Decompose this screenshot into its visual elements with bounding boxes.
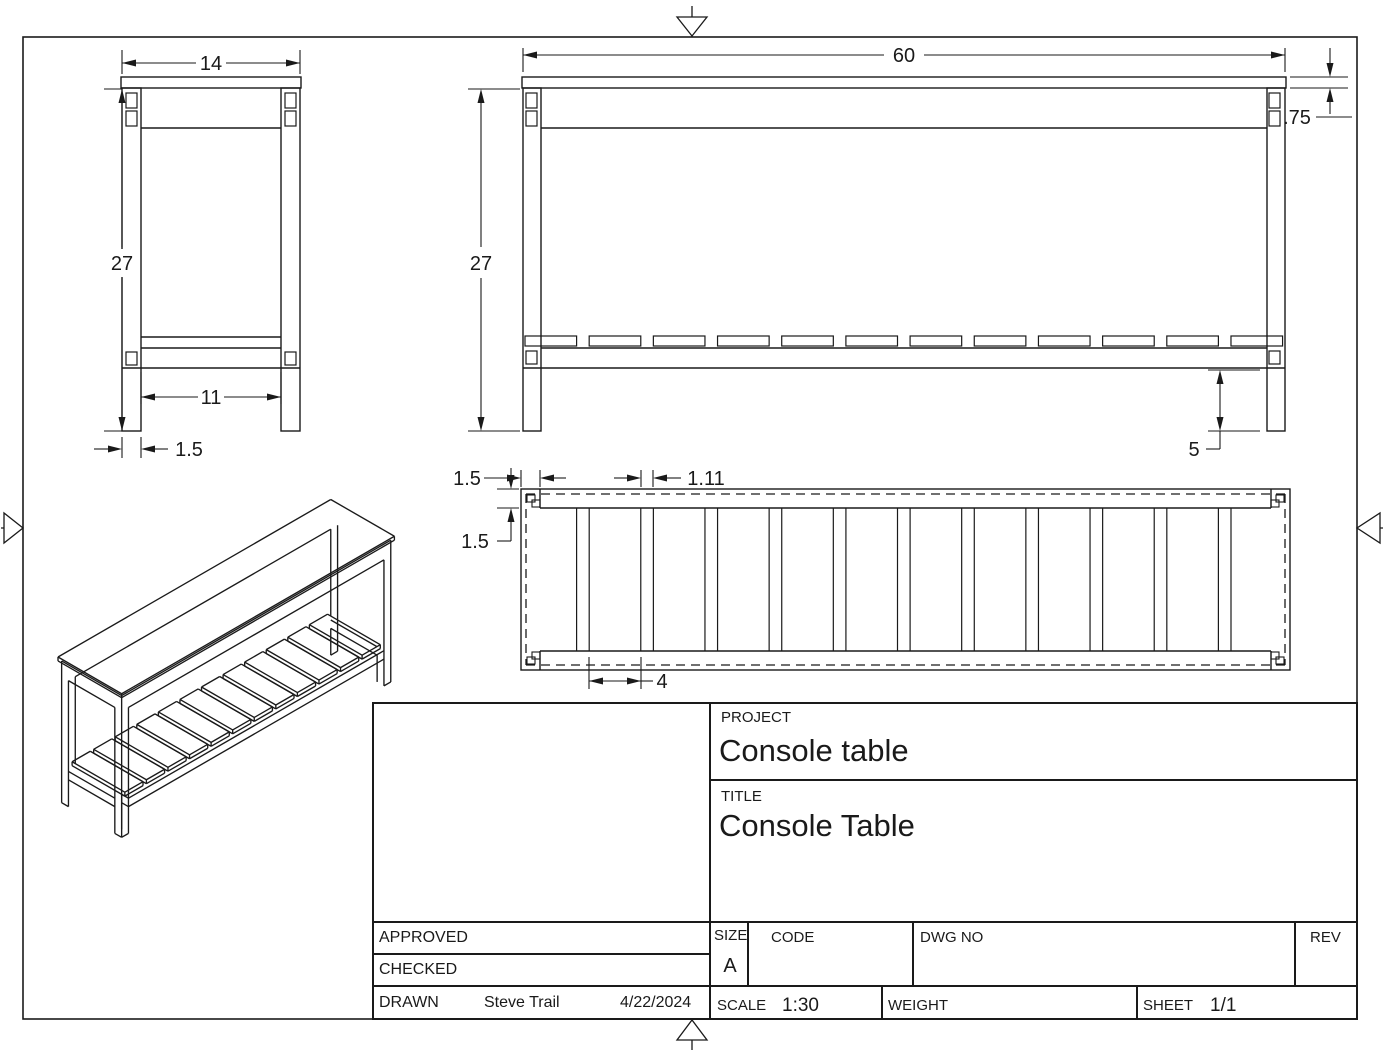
drawing-rect (1269, 351, 1280, 364)
drawing-rect (1276, 495, 1284, 502)
front-shelf-height-dim-label: 5 (1188, 439, 1199, 461)
approved-label: APPROVED (379, 929, 468, 947)
drawing-rect (285, 111, 296, 126)
drawing-line (223, 664, 241, 675)
drawing-rect (653, 336, 705, 346)
front-width-dim-label: 60 (893, 45, 915, 67)
dimension-arrowhead (478, 417, 485, 431)
dimension-arrowhead (122, 60, 136, 67)
front-view: 6027.755 (464, 45, 1352, 461)
drawing-sheet: 1427111.56027.7551.51.111.54 PROJECT Con… (0, 0, 1384, 1053)
front-height-dim-label: 27 (470, 253, 492, 275)
dimension-arrowhead (589, 678, 603, 685)
drawing-rect (526, 351, 537, 364)
drawing-line (72, 766, 125, 796)
dimension-arrowhead (286, 60, 300, 67)
plan-slat-width-dim-label: 4 (656, 671, 667, 693)
drawing-rect (1271, 500, 1279, 507)
drawing-line (158, 701, 176, 712)
drawing-line (309, 614, 327, 625)
drawing-rect (285, 93, 296, 108)
dimension-arrowhead (119, 89, 126, 103)
drawing-line (202, 677, 220, 688)
drawing-line (115, 726, 133, 737)
drawing-line (68, 780, 114, 807)
drawing-rect (526, 93, 537, 108)
drawn-date: 4/22/2024 (620, 994, 691, 1012)
dimension-arrowhead (1327, 63, 1334, 77)
project-value: Console table (719, 733, 909, 769)
plan-slat-gap-dim-label: 1.11 (687, 468, 724, 490)
side-width-dim-label: 14 (200, 53, 222, 75)
drawing-rect (1269, 111, 1280, 126)
drawing-line (62, 803, 69, 807)
side-inner-dim-label: 11 (201, 387, 222, 409)
drawing-rect (1269, 93, 1280, 108)
dimension-arrowhead (267, 394, 281, 401)
dimension-arrowhead (1327, 88, 1334, 102)
drawing-rect (1276, 657, 1284, 664)
dimension-arrowhead (653, 475, 667, 482)
drawing-line (58, 500, 331, 658)
drawn-label: DRAWN (379, 994, 439, 1012)
drawing-line (245, 652, 263, 663)
drawing-rect (527, 657, 535, 664)
drawing-rect (1231, 336, 1283, 346)
project-label: PROJECT (721, 709, 791, 726)
drawing-line (384, 682, 391, 686)
dimension-arrowhead (119, 417, 126, 431)
centering-mark-top (677, 17, 707, 36)
dimension-arrowhead (1271, 52, 1285, 59)
drawing-line (128, 560, 383, 708)
dimension-arrowhead (627, 475, 641, 482)
dimension-arrowhead (508, 475, 515, 489)
drawing-rect (974, 336, 1026, 346)
dimension-arrowhead (141, 394, 155, 401)
drawing-rect (782, 336, 834, 346)
drawing-rect (126, 93, 137, 108)
title-label: TITLE (721, 788, 762, 805)
drawing-line (288, 627, 306, 638)
centering-mark-right (1357, 513, 1380, 543)
drawing-line (331, 500, 395, 537)
checked-label: CHECKED (379, 961, 457, 979)
plan-rail-end-dim-label: 1.5 (453, 468, 481, 490)
drawing-rect (526, 111, 537, 126)
drawing-rect (121, 77, 301, 88)
drawing-rect (910, 336, 962, 346)
centering-marks (1, 6, 1383, 1050)
drawing-line (62, 661, 122, 696)
centering-mark-bottom (677, 1020, 707, 1040)
drawing-rect (589, 336, 641, 346)
scale-value: 1:30 (782, 995, 819, 1017)
drawing-line (122, 803, 129, 807)
drawing-rect (1038, 336, 1090, 346)
dimension-arrowhead (508, 508, 515, 522)
drawing-rect (718, 336, 770, 346)
drawing-rect (525, 336, 577, 346)
drawing-line (122, 833, 129, 837)
drawing-rect (285, 352, 296, 365)
centering-mark-left (4, 513, 23, 543)
plan-rail-side-dim-label: 1.5 (461, 531, 489, 553)
drawing-rect (527, 495, 535, 502)
dimension-arrowhead (523, 52, 537, 59)
rev-label: REV (1310, 929, 1341, 946)
sheet-value: 1/1 (1210, 995, 1236, 1017)
drawing-line (331, 651, 338, 655)
drawing-rect (532, 500, 540, 507)
dimension-arrowhead (478, 89, 485, 103)
side-height-dim-label: 27 (111, 253, 133, 275)
drawing-rect (846, 336, 898, 346)
title-value: Console Table (719, 808, 915, 844)
drawing-line (58, 661, 122, 698)
code-label: CODE (771, 929, 814, 946)
dimension-arrowhead (1217, 417, 1224, 431)
drawing-rect (1103, 336, 1155, 346)
drawing-line (128, 659, 383, 807)
weight-label: WEIGHT (888, 997, 948, 1014)
scale-label: SCALE (717, 997, 766, 1014)
drawing-line (180, 689, 198, 700)
drawing-rect (1271, 652, 1279, 659)
sheet-border (23, 37, 1357, 1019)
drawing-line (137, 714, 155, 725)
dimension-arrowhead (1217, 370, 1224, 384)
drawing-rect (23, 37, 1357, 1019)
side-leg-dim-label: 1.5 (175, 439, 203, 461)
drawing-line (94, 739, 112, 750)
drawing-rect (126, 352, 137, 365)
size-label: SIZE (714, 927, 747, 944)
drawing-rect (281, 88, 300, 431)
drawing-rect (523, 88, 541, 431)
plan-view: 1.51.111.54 (453, 468, 1290, 693)
size-value: A (710, 955, 750, 978)
drawing-rect (1267, 88, 1285, 431)
drawing-rect (1167, 336, 1219, 346)
drawing-line (58, 657, 122, 694)
dimension-arrowhead (540, 475, 554, 482)
front-top-thickness-dim-label: .75 (1283, 107, 1311, 129)
isometric-view (58, 500, 394, 838)
drawing-canvas: 1427111.56027.7551.51.111.54 (0, 0, 1384, 1053)
dimension-arrowhead (141, 446, 155, 453)
drawing-rect (521, 489, 1290, 670)
dwg-no-label: DWG NO (920, 929, 983, 946)
drawing-rect (532, 652, 540, 659)
drawing-rect (522, 77, 1286, 88)
drawing-rect (126, 111, 137, 126)
drawing-line (75, 529, 330, 677)
dimension-arrowhead (108, 446, 122, 453)
side-view: 1427111.5 (94, 50, 301, 461)
drawing-line (115, 833, 122, 837)
drawing-line (68, 771, 114, 798)
drawn-by: Steve Trail (484, 994, 560, 1012)
dimension-arrowhead (627, 678, 641, 685)
drawing-line (266, 639, 284, 650)
sheet-label: SHEET (1143, 997, 1193, 1014)
